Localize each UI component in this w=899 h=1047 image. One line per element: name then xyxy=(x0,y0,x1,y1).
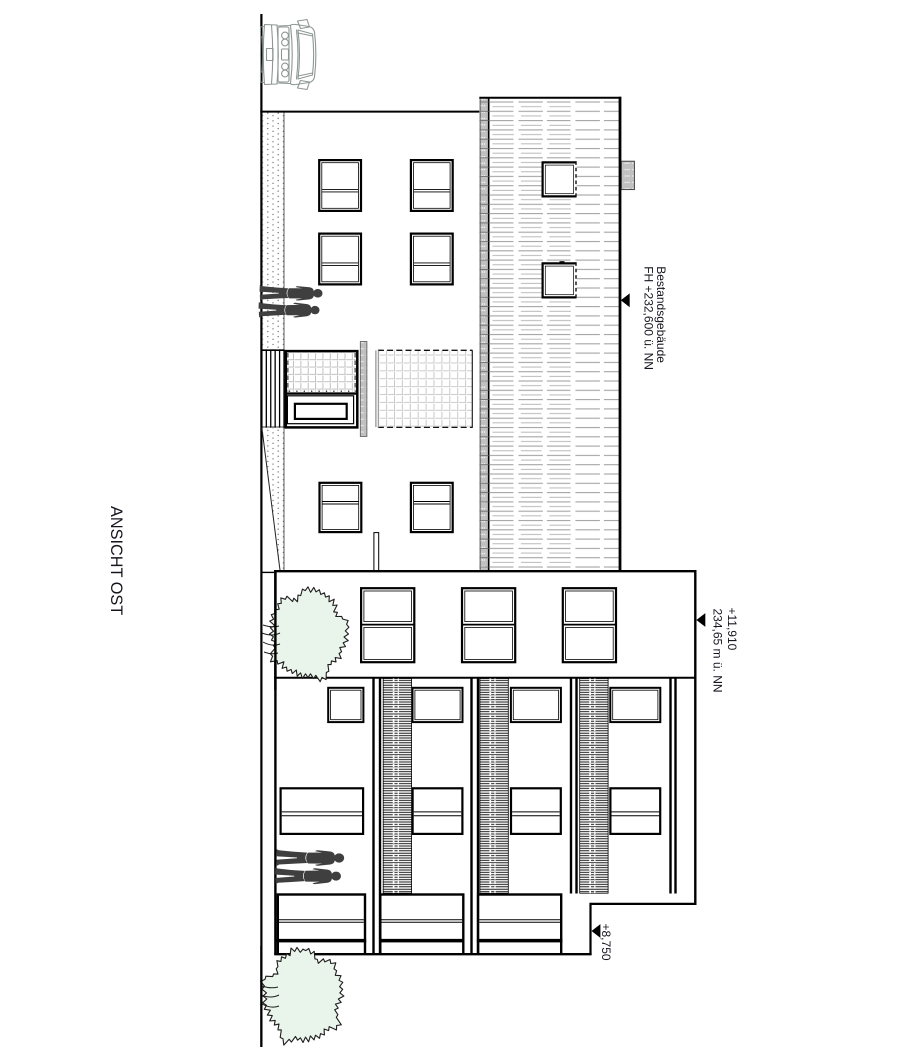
svg-text:234,65 m ü. NN: 234,65 m ü. NN xyxy=(711,609,725,693)
svg-text:+11,910: +11,910 xyxy=(725,608,739,651)
svg-text:+8,750: +8,750 xyxy=(599,924,613,961)
svg-text:ANSICHT OST: ANSICHT OST xyxy=(107,506,125,615)
svg-text:FH +232,600 ü. NN: FH +232,600 ü. NN xyxy=(642,266,656,370)
